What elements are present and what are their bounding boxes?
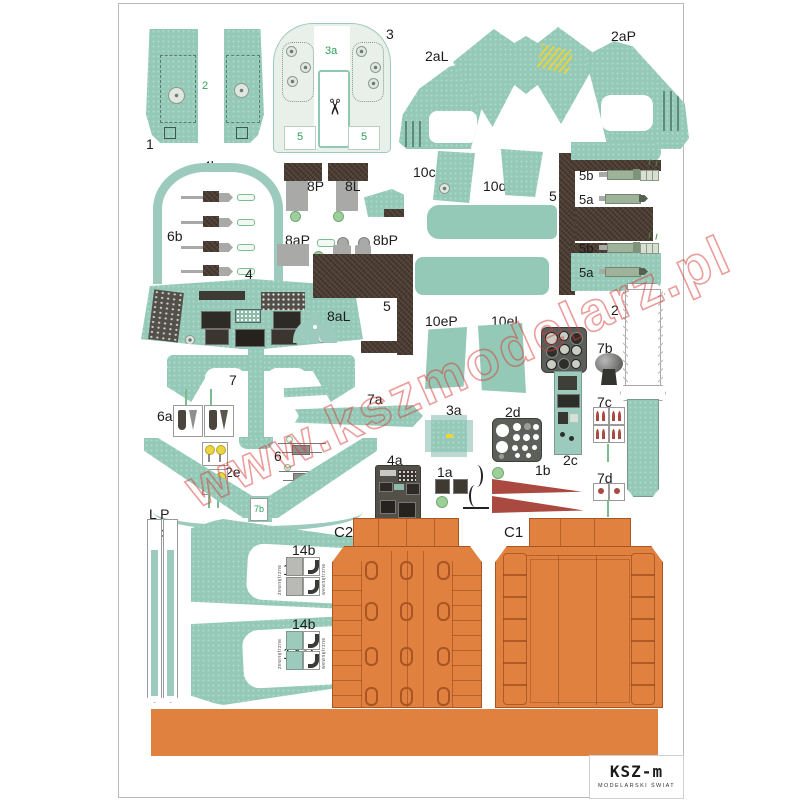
red-dot [598, 488, 604, 494]
dial [571, 345, 582, 356]
part-label: 5a [579, 193, 593, 206]
red-shape [602, 429, 605, 439]
red-shape [602, 411, 605, 421]
part-label: 5 [297, 131, 303, 143]
seg [605, 267, 641, 277]
small-fairing-piece [364, 189, 404, 217]
fastener [400, 647, 413, 666]
gun-5b [599, 167, 657, 181]
grommet [439, 183, 450, 194]
hook-card [303, 651, 320, 670]
divider [406, 519, 407, 547]
part-label: 2aP [611, 29, 636, 43]
part-6b-gun-row [181, 263, 231, 279]
cut-slot: ✂ [318, 70, 350, 148]
part-4a-console [375, 465, 421, 523]
part-10eL [478, 323, 526, 393]
part-label: 7 [229, 373, 237, 387]
grommet [185, 335, 195, 345]
part-C1-panel [495, 546, 663, 708]
part-label: 2aL [425, 49, 448, 63]
part-C1-tab [529, 518, 631, 548]
part-6b-gun-row [181, 189, 231, 205]
part-2-mast-collar [620, 385, 666, 401]
part-6-assembly [278, 440, 326, 454]
part-label: 2d [505, 405, 521, 419]
bomb-shape [220, 410, 228, 430]
bolt-circle [300, 62, 311, 73]
part-6a-card [204, 405, 234, 437]
hole [515, 453, 520, 458]
frame-cutout [205, 368, 245, 388]
part-7-spine-foot [239, 437, 273, 449]
part-5-foot [361, 341, 399, 353]
part-7c-card [609, 407, 625, 425]
part-label: 10c [413, 165, 436, 179]
scanned-model-sheet: www.kszmodelarz.pl 2 1 3a ✂ 5 5 3 [0, 0, 800, 800]
gun-5b [599, 240, 657, 254]
part-7d-card [593, 483, 609, 501]
part-label: C2 [334, 525, 353, 540]
dial [546, 359, 557, 370]
gun-tail [181, 246, 203, 249]
instrument [557, 394, 580, 408]
disc-8P [290, 211, 301, 222]
zigzag-edge [623, 290, 628, 386]
divider [594, 519, 595, 547]
inner-frame [530, 559, 630, 703]
part-8aL [293, 313, 337, 343]
part-3-bulkhead: 3a ✂ 5 5 [273, 23, 391, 153]
top-seam [526, 555, 632, 556]
fastener [437, 687, 450, 706]
dial [558, 358, 570, 370]
bolt-circle [368, 78, 379, 89]
dial [545, 332, 558, 345]
box-flap [431, 415, 467, 421]
strip-fill [151, 550, 158, 696]
part-label: 10eP [425, 314, 458, 328]
bolt-circle [356, 46, 367, 57]
hole [532, 445, 537, 450]
hole [513, 423, 521, 431]
dot-grid [261, 292, 305, 310]
bolt-circle [286, 46, 297, 57]
fastener [437, 647, 450, 666]
corner-hook-glyph [308, 580, 319, 594]
bomb-shape [189, 410, 197, 430]
window-cut [601, 95, 653, 131]
yellow-light [216, 445, 226, 455]
part-3a-box [425, 415, 473, 457]
part-label: 2 [202, 81, 208, 92]
model-sheet-page: www.kszmodelarz.pl 2 1 3a ✂ 5 5 3 [118, 3, 684, 798]
wire-curve [469, 485, 481, 507]
logo-tagline: MODELARSKI ŚWIAT [590, 783, 683, 789]
scissors-icon: ✂ [321, 98, 347, 116]
fastener [365, 602, 378, 621]
wing [319, 321, 337, 343]
fastener [365, 561, 378, 580]
part-7-right-flare [311, 368, 355, 402]
vent-circle [234, 83, 249, 98]
disc-1a [436, 496, 448, 508]
bomb-shape [178, 410, 186, 430]
frame-cutout [267, 368, 307, 388]
hole [524, 423, 531, 430]
part-label: 5b [579, 169, 593, 182]
red-shape [618, 429, 621, 439]
seg [633, 169, 640, 180]
fastener [365, 647, 378, 666]
fastener [437, 602, 450, 621]
red-shape [612, 429, 615, 439]
part-10d [499, 149, 543, 197]
red-shape [596, 429, 599, 439]
bottom-orange-strip [151, 709, 658, 756]
ring [286, 436, 293, 443]
gauge-box [235, 309, 261, 323]
bracket-mark [236, 127, 248, 139]
part-14b-cards [286, 631, 320, 669]
divider [378, 519, 379, 547]
part-label: 5a [579, 266, 593, 279]
pad [286, 557, 303, 576]
stem-line [607, 501, 609, 517]
hole [523, 434, 530, 441]
hole [512, 445, 518, 451]
gauge-box [201, 311, 231, 329]
hole [496, 424, 509, 437]
part-6b-gun-row [181, 214, 231, 230]
part-8P-leg [286, 181, 308, 211]
box-flap [425, 420, 432, 452]
dial [559, 344, 570, 355]
panel-line [391, 551, 392, 707]
side-ribs [452, 561, 481, 707]
seg [640, 243, 659, 254]
red-dot [614, 488, 620, 494]
louver-lines [663, 91, 683, 131]
seg [640, 170, 659, 181]
part-5-bar [397, 297, 413, 355]
part-label: 5 [549, 189, 557, 203]
floor-band [415, 257, 549, 295]
zigzag-edge [658, 290, 663, 386]
fastener [437, 561, 450, 580]
part-7c-card [609, 425, 625, 443]
strip-6b [237, 219, 255, 226]
gun-nose [219, 243, 233, 252]
part-C2-tab [353, 518, 459, 548]
fastener [400, 561, 413, 580]
seg [639, 268, 648, 275]
hole [513, 434, 520, 441]
pennant [492, 479, 582, 494]
strip [380, 470, 396, 476]
part-2e-card [202, 442, 228, 466]
rotated-caption: wewnętrzne [322, 631, 327, 669]
part-2-mast-white [625, 289, 661, 387]
hole [313, 325, 317, 329]
part-5-top-arm [571, 142, 661, 162]
red-shape [618, 411, 621, 421]
disc-1b [492, 467, 504, 479]
gun-5a [599, 192, 651, 204]
corner-hook-glyph [308, 634, 319, 648]
part-label: 1a [437, 465, 453, 479]
part-2aP-engine-cover [585, 41, 689, 149]
publisher-logo-box: KSZ-m MODELARSKI ŚWIAT [589, 755, 684, 799]
part-10eP [425, 327, 467, 389]
gauge-box [205, 329, 229, 345]
rotated-caption: zewnętrzne [278, 631, 283, 669]
strip-6b [237, 194, 255, 201]
hinge-column [631, 553, 655, 705]
part-2-mast-teal [627, 399, 659, 497]
gun-body [203, 241, 219, 252]
part-6b-gun-row [181, 239, 231, 255]
pad [286, 651, 303, 670]
part-7d-card [609, 483, 625, 501]
part-5-mid-band [575, 207, 653, 241]
box [394, 484, 404, 490]
dial [571, 359, 581, 369]
part-label: 5 [383, 299, 391, 313]
dial [546, 346, 558, 358]
side-console [148, 289, 184, 342]
disc-8L [333, 211, 344, 222]
part-label: 10d [483, 179, 506, 193]
bomb-shape [209, 410, 217, 430]
hole [499, 454, 504, 459]
hole [533, 434, 539, 440]
part-label: 5 [361, 131, 367, 143]
hole [496, 441, 508, 453]
fastener [400, 687, 413, 706]
part-14b-cards [286, 557, 320, 595]
seg [599, 172, 607, 177]
strip-6b [237, 244, 255, 251]
seg [639, 195, 648, 202]
box [380, 500, 396, 514]
part-label: 3a [325, 46, 337, 57]
gun-nose [219, 267, 233, 276]
part-7-spine [248, 349, 264, 445]
rod [278, 443, 326, 444]
part-1a-plate [453, 479, 468, 494]
part-7c-card [593, 407, 609, 425]
part-9b-strip [163, 519, 178, 703]
part-label: 14b [292, 617, 315, 631]
hook-card [303, 577, 320, 596]
instrument [558, 376, 577, 390]
gun-nose [219, 193, 233, 202]
part-label: L P [149, 507, 170, 521]
bolt-circle [287, 76, 298, 87]
part-2c-panel-head [541, 327, 587, 373]
tab-5-right: 5 [348, 126, 380, 150]
yellow-hatch-patch [537, 43, 574, 74]
pad [286, 577, 303, 596]
part-label: 1 [146, 137, 154, 151]
part-7a-blade [295, 405, 423, 427]
gauge-box [235, 329, 265, 347]
gun-nose [219, 218, 233, 227]
red-shape [596, 411, 599, 421]
part-7b-knob [595, 353, 623, 385]
fastener [365, 687, 378, 706]
part-2d-plate [492, 418, 542, 462]
dark-edge [384, 209, 404, 217]
box [406, 483, 420, 495]
part-label: 4 [245, 267, 253, 281]
box [379, 482, 393, 492]
part-label: C1 [504, 525, 523, 540]
gun-tail [181, 221, 203, 224]
corner-hook-glyph [308, 654, 319, 668]
wing [293, 321, 311, 343]
dial [559, 331, 569, 341]
red-shape [612, 411, 615, 421]
fastener [400, 602, 413, 621]
box-flap [466, 420, 473, 452]
bracket-mark [164, 127, 176, 139]
thin-strut [284, 386, 330, 397]
part-label: 2c [563, 453, 578, 467]
part-label: 8bP [373, 233, 398, 247]
stem [208, 454, 210, 462]
hook-card [303, 631, 320, 650]
part-7c-card [593, 425, 609, 443]
part-label: 7a [367, 392, 383, 406]
hole [526, 453, 531, 458]
gun-tail [181, 270, 203, 273]
hook-card [303, 557, 320, 576]
rotated-caption: zewnętrzne [278, 557, 283, 595]
part-label: 3 [386, 27, 394, 41]
part-label: 14b [292, 543, 315, 557]
instrument [558, 412, 568, 424]
part-label: 8L [345, 179, 361, 193]
gun-body [203, 216, 219, 227]
part-label: 8P [307, 179, 324, 193]
hole [522, 445, 528, 451]
knob-dot [560, 432, 565, 437]
part-2c-panel-stem [554, 371, 582, 455]
rotated-caption: wewnętrzne [322, 557, 327, 595]
seg [599, 245, 607, 250]
wire-curve [471, 465, 483, 487]
seg [633, 242, 640, 253]
strip-fill [167, 550, 174, 696]
stem [219, 454, 221, 462]
part-5-band [313, 254, 413, 298]
stem-line [607, 444, 609, 462]
rod [282, 452, 322, 453]
panel-line [423, 551, 424, 707]
part-10c [433, 151, 475, 203]
yellow-light [205, 445, 215, 455]
side-ribs [333, 561, 362, 707]
gun-body [203, 265, 219, 276]
part-6a-card [173, 405, 203, 437]
dial [570, 332, 583, 345]
strip-gauge [199, 291, 245, 300]
bolt-circle [370, 62, 381, 73]
hinge-column [503, 553, 527, 705]
part-label: 2 [611, 303, 619, 317]
dot-grid [398, 470, 416, 482]
divider [560, 519, 561, 547]
yellow-mark [446, 434, 453, 438]
vent-circle [168, 87, 185, 104]
divider [434, 519, 435, 547]
knob-dot [569, 436, 574, 441]
part-8aP-plate [277, 244, 309, 266]
part-2-fuselage-top: 2 [146, 29, 264, 143]
louver-lines [405, 121, 425, 147]
block [292, 445, 310, 455]
part-9b-strip [147, 519, 162, 703]
box-flap [431, 451, 467, 457]
logo-brand: KSZ-m [590, 762, 683, 781]
pad [286, 631, 303, 650]
gun-body [203, 191, 219, 202]
seg [605, 194, 641, 204]
instrument [570, 414, 578, 422]
part-label: 6a [157, 409, 173, 423]
box [398, 502, 416, 518]
pennant [492, 496, 584, 513]
floor-band [427, 205, 557, 239]
part-label: 1b [535, 463, 551, 477]
gun-tail [181, 196, 203, 199]
part-C2-panel [332, 546, 482, 708]
ring [284, 464, 291, 471]
gun-5a [599, 265, 651, 277]
corner-hook-glyph [308, 560, 319, 574]
part-1a-plate [435, 479, 450, 494]
hole [533, 424, 539, 430]
knob-stem [601, 369, 617, 385]
tab-5-left: 5 [284, 126, 316, 150]
part-7-left-flare [167, 368, 211, 402]
wire-base [463, 507, 489, 509]
window-cut [429, 111, 477, 143]
part-label: 5b [579, 242, 593, 255]
